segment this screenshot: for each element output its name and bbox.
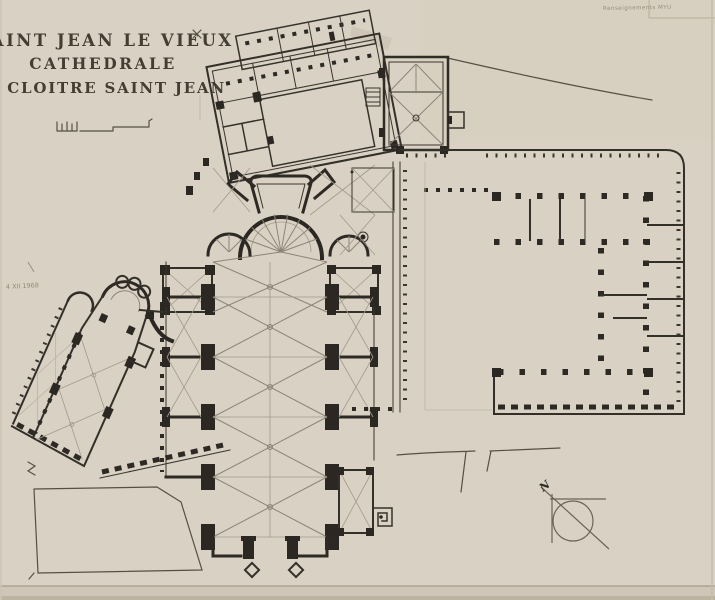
title-line-1: SAINT JEAN LE VIEUX <box>0 31 234 50</box>
title-line-2: CATHEDRALE <box>29 54 177 73</box>
plan-sheet: SAINT JEAN LE VIEUX CATHEDRALE ET CLOITR… <box>0 0 715 600</box>
archival-pencil-note: Renseignements MYU <box>603 5 672 12</box>
plan-drawing: SAINT JEAN LE VIEUX CATHEDRALE ET CLOITR… <box>0 0 715 600</box>
title-line-3: ET CLOITRE SAINT JEAN <box>0 79 226 97</box>
